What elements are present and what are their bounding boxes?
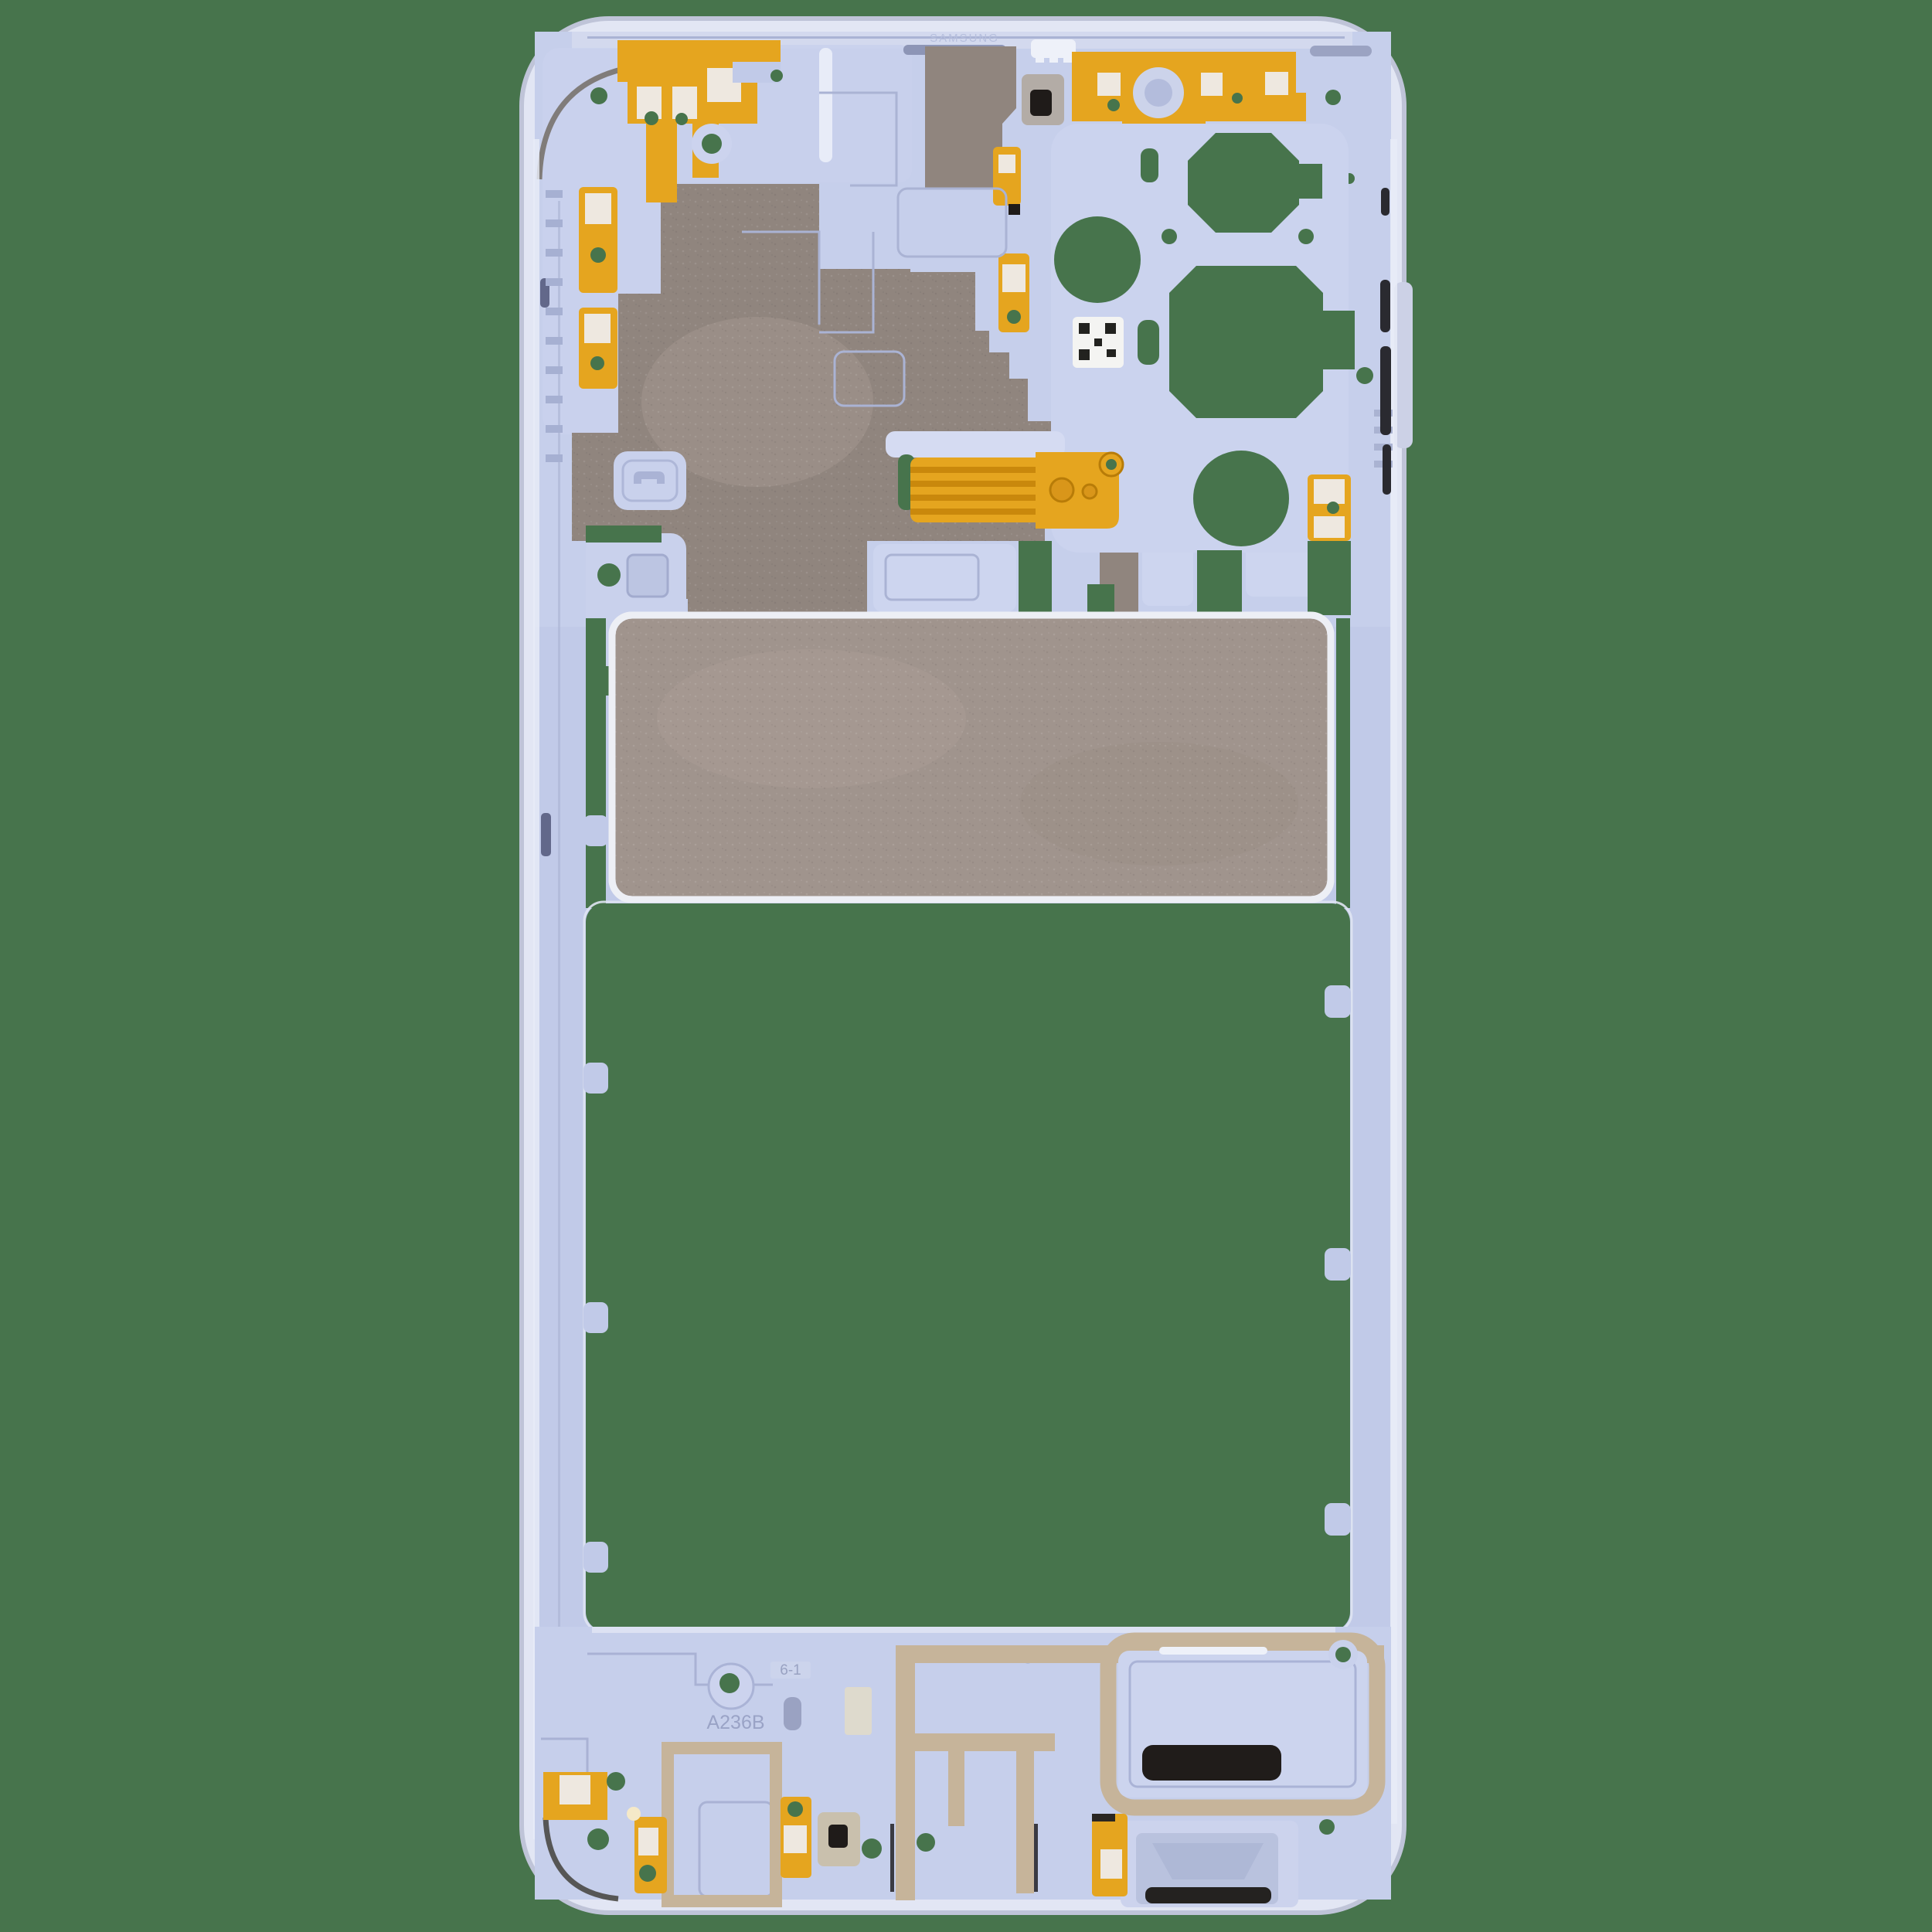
svg-text:SAMSUNG: SAMSUNG xyxy=(930,32,999,45)
svg-text:A236B: A236B xyxy=(706,1712,764,1733)
svg-text:6-1: 6-1 xyxy=(780,1662,801,1679)
